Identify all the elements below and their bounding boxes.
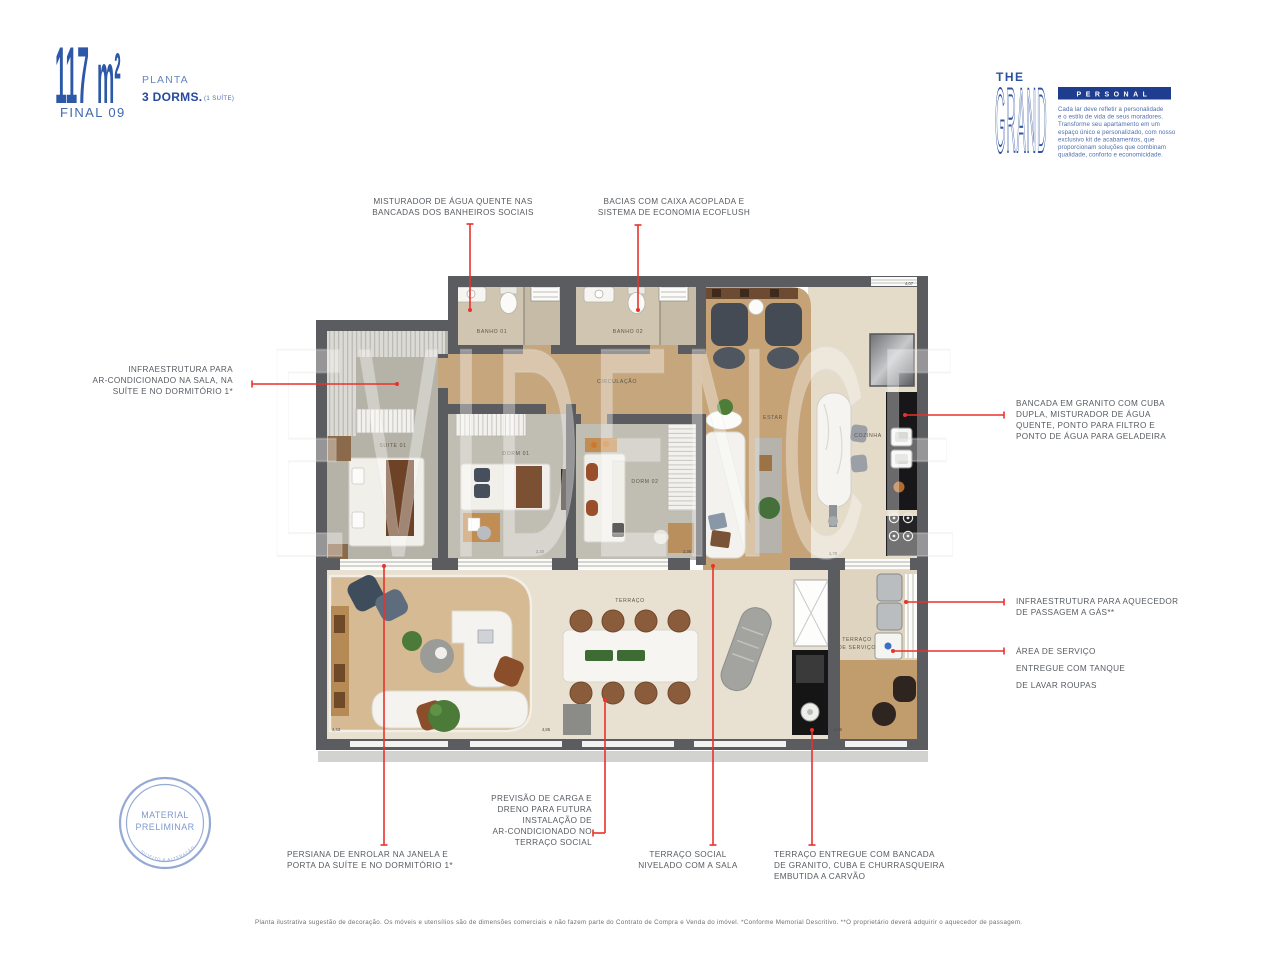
svg-text:espaço único e personalizado,: espaço único e personalizado, com nosso (1058, 129, 1176, 136)
svg-text:BACIAS COM CAIXA ACOPLADA E: BACIAS COM CAIXA ACOPLADA E (604, 197, 745, 206)
svg-text:BANCADA EM GRANITO COM CUBA: BANCADA EM GRANITO COM CUBA (1016, 399, 1165, 408)
svg-text:DE LAVAR ROUPAS: DE LAVAR ROUPAS (1016, 681, 1097, 690)
svg-text:PERSONAL: PERSONAL (1077, 92, 1152, 99)
svg-text:Transforme seu apartamento em: Transforme seu apartamento em um (1058, 121, 1160, 128)
svg-text:MATERIAL: MATERIAL (141, 810, 189, 820)
svg-text:3 DORMS.: 3 DORMS. (142, 90, 202, 104)
svg-text:AR-CONDICIONADO NA SALA, NA: AR-CONDICIONADO NA SALA, NA (93, 376, 234, 385)
svg-text:INSTALAÇÃO DE: INSTALAÇÃO DE (523, 815, 593, 825)
svg-text:AR-CONDICIONADO NO: AR-CONDICIONADO NO (492, 827, 592, 836)
svg-text:TERRAÇO ENTREGUE COM BANCADA: TERRAÇO ENTREGUE COM BANCADA (774, 850, 935, 859)
svg-text:TERRAÇO SOCIAL: TERRAÇO SOCIAL (649, 850, 726, 859)
svg-text:TERRAÇO SOCIAL: TERRAÇO SOCIAL (515, 838, 592, 847)
svg-text:e o estilo de vida de seus mor: e o estilo de vida de seus moradores. (1058, 114, 1163, 121)
svg-text:DUPLA, MISTURADOR DE ÁGUA: DUPLA, MISTURADOR DE ÁGUA (1016, 409, 1151, 419)
svg-text:DE GRANITO, CUBA E CHURRASQUEI: DE GRANITO, CUBA E CHURRASQUEIRA (774, 861, 945, 870)
svg-text:DRENO PARA FUTURA: DRENO PARA FUTURA (497, 805, 592, 814)
svg-text:proporcionam soluções que comb: proporcionam soluções que combinam (1058, 144, 1166, 151)
svg-text:4,85: 4,85 (542, 727, 551, 732)
svg-text:1,85: 1,85 (834, 727, 843, 732)
svg-text:INFRAESTRUTURA PARA: INFRAESTRUTURA PARA (128, 365, 233, 374)
svg-text:PONTO DE ÁGUA PARA GELADEIRA: PONTO DE ÁGUA PARA GELADEIRA (1016, 431, 1166, 441)
svg-text:INFRAESTRUTURA PARA AQUECEDOR: INFRAESTRUTURA PARA AQUECEDOR (1016, 597, 1178, 606)
svg-text:ÁREA DE SERVIÇO: ÁREA DE SERVIÇO (1016, 646, 1096, 656)
svg-text:GRAND: GRAND (995, 68, 1048, 172)
svg-text:Cada lar deve refletir a perso: Cada lar deve refletir a personalidade (1058, 106, 1164, 113)
svg-text:Planta ilustrativa sugestão de: Planta ilustrativa sugestão de decoração… (255, 919, 1022, 926)
svg-text:qualidade, conforto e economic: qualidade, conforto e economicidade. (1058, 152, 1163, 159)
svg-text:BANCADAS DOS BANHEIROS SOCIAIS: BANCADAS DOS BANHEIROS SOCIAIS (372, 208, 534, 217)
svg-text:PORTA DA SUÍTE E NO DORMITÓRIO: PORTA DA SUÍTE E NO DORMITÓRIO 1* (287, 860, 453, 870)
svg-text:MISTURADOR DE ÁGUA QUENTE NAS: MISTURADOR DE ÁGUA QUENTE NAS (373, 196, 533, 206)
svg-text:PRELIMINAR: PRELIMINAR (135, 822, 194, 832)
svg-text:QUENTE, PONTO PARA FILTRO E: QUENTE, PONTO PARA FILTRO E (1016, 421, 1155, 430)
svg-text:EVIDENCE: EVIDENCE (267, 286, 968, 621)
svg-text:exclusivo kit de acabamentos,: exclusivo kit de acabamentos, que (1058, 136, 1155, 143)
svg-text:PLANTA: PLANTA (142, 74, 189, 86)
svg-text:SISTEMA DE ECONOMIA ECOFLUSH: SISTEMA DE ECONOMIA ECOFLUSH (598, 208, 750, 217)
svg-text:SUJEITO A ALTERAÇÃO: SUJEITO A ALTERAÇÃO (140, 845, 196, 862)
svg-text:SUÍTE E NO DORMITÓRIO 1*: SUÍTE E NO DORMITÓRIO 1* (113, 386, 234, 396)
svg-text:DE SERVIÇO: DE SERVIÇO (838, 645, 876, 651)
svg-text:(1 SUÍTE): (1 SUÍTE) (204, 95, 234, 102)
svg-text:FINAL 09: FINAL 09 (60, 105, 126, 120)
svg-text:PERSIANA DE ENROLAR NA JANELA: PERSIANA DE ENROLAR NA JANELA E (287, 850, 448, 859)
svg-text:ENTREGUE COM TANQUE: ENTREGUE COM TANQUE (1016, 664, 1125, 673)
svg-text:NIVELADO COM A SALA: NIVELADO COM A SALA (638, 861, 738, 870)
svg-text:TERRAÇO: TERRAÇO (842, 637, 872, 643)
svg-text:4,43: 4,43 (332, 727, 341, 732)
svg-text:EMBUTIDA A CARVÃO: EMBUTIDA A CARVÃO (774, 871, 865, 881)
svg-text:PREVISÃO DE CARGA E: PREVISÃO DE CARGA E (491, 793, 592, 803)
svg-text:DE PASSAGEM A GÁS**: DE PASSAGEM A GÁS** (1016, 607, 1115, 617)
